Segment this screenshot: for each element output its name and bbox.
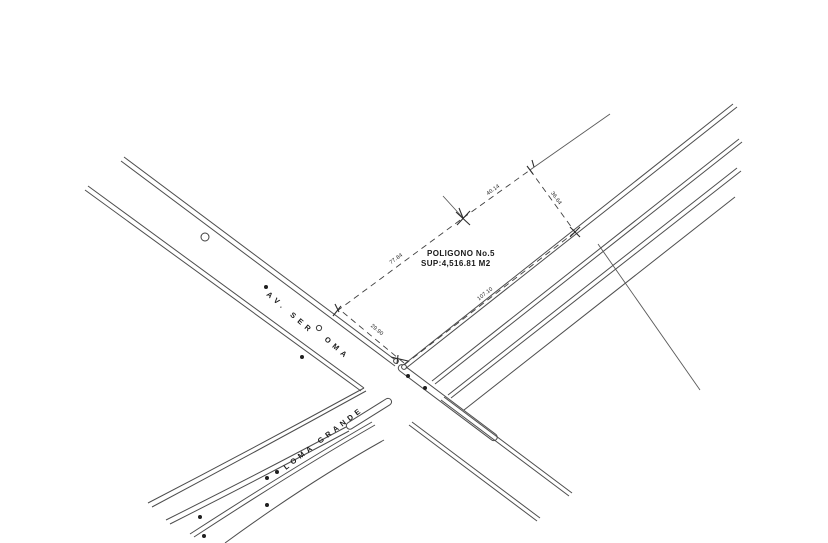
street-label-avenue-start: AV. SER <box>265 290 316 336</box>
polygon-area: SUP:4,516.81 M2 <box>421 259 491 268</box>
survey-drawing: POLIGONO No.5 SUP:4,516.81 M2 29.90 77.8… <box>0 0 828 543</box>
street-labels: AV. SER OMA LOMA GRANDE <box>265 290 365 472</box>
vertex-marker-corner-monument <box>391 355 408 369</box>
survey-drawing-canvas: POLIGONO No.5 SUP:4,516.81 M2 29.90 77.8… <box>0 0 828 543</box>
loma-grande-sw-lines <box>148 388 384 543</box>
dim-label-ab: 29.90 <box>369 323 384 337</box>
vertex-marker-x-north <box>456 208 470 225</box>
median-island-avenue <box>397 363 499 442</box>
polygon-title: POLIGONO No.5 <box>427 249 495 258</box>
dim-label-cd: 40.14 <box>486 183 501 197</box>
vertex-tick-top <box>527 160 534 174</box>
avenue-se-continuation <box>409 397 572 521</box>
vertex-tick-west <box>333 304 341 316</box>
street-label-avenue-end: OMA <box>323 335 352 362</box>
dim-label-bc: 77.84 <box>389 252 404 266</box>
